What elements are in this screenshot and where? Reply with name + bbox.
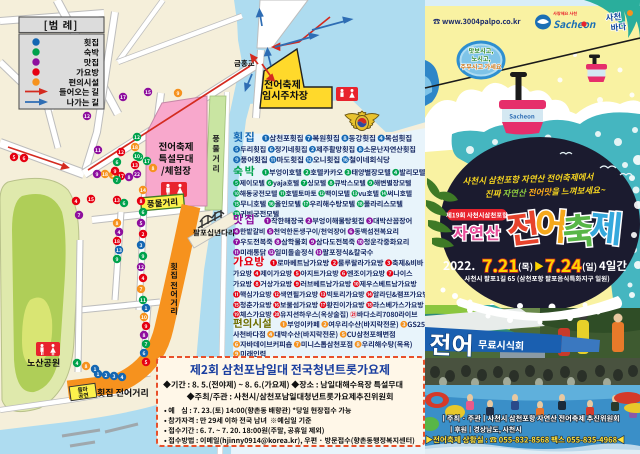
svg-text:사천바다점 ❹대박수산(바지락전문) ❺CU삼천포해변점: 사천바다점 ❹대박수산(바지락전문) ❺CU삼천포해변점	[233, 330, 396, 340]
svg-text:13: 13	[132, 162, 138, 169]
svg-text:가요방 ❹제이가요방 ❺아지트가요방 ❻엔조이가요방 ❼나이: 가요방 ❹제이가요방 ❺아지트가요방 ❻엔조이가요방 ❼나이스	[233, 269, 413, 279]
svg-text:18: 18	[132, 144, 138, 151]
svg-text:❺두리횟집 ❻정기네횟집 ❷제주활망횟집 ❽소문난자연산횟집: ❺두리횟집 ❻정기네횟집 ❷제주활망횟집 ❽소문난자연산횟집	[233, 145, 416, 155]
svg-text:• 접수기간 : 6. 7. ~ 7. 20. 18:00원: • 접수기간 : 6. 7. ~ 7. 20. 18:00원(주말, 공휴일 제…	[164, 426, 325, 436]
svg-text:나가는 길: 나가는 길	[67, 97, 99, 109]
svg-text:15: 15	[145, 89, 151, 96]
svg-text:9: 9	[116, 256, 119, 263]
svg-text:6: 6	[142, 209, 145, 216]
svg-text:무료시식회: 무료시식회	[478, 336, 524, 353]
svg-text:6: 6	[23, 155, 26, 162]
svg-text:가요방 ❽거상가요방 ❾러브베트남가요방 ❿제우스베트남가요: 가요방 ❽거상가요방 ❾러브베트남가요방 ❿제우스베트남가요방	[233, 280, 417, 290]
svg-text:Sacheon: Sacheon	[509, 112, 535, 121]
svg-text:18: 18	[102, 171, 108, 178]
svg-text:제: 제	[587, 198, 625, 253]
svg-text:13: 13	[114, 197, 120, 204]
svg-text:⓫핵심가요방 ⓬색연필가요방 ⓭빅토리가요방 ⓮알라딘&램프: ⓫핵심가요방 ⓬색연필가요방 ⓭빅토리가요방 ⓮알라딘&램프가요방	[233, 290, 429, 300]
svg-text:12: 12	[134, 134, 140, 141]
svg-text:2: 2	[142, 231, 145, 238]
svg-text:횟집 전어거리: 횟집 전어거리	[169, 262, 180, 315]
svg-text:❾풍어횟집 ⓫마도횟집 ⓬오니횟집 ⓰철이네회식당: ❾풍어횟집 ⓫마도횟집 ⓬오니횟집 ⓰철이네회식당	[233, 155, 390, 166]
svg-text:1: 1	[145, 305, 148, 312]
svg-text:전어: 전어	[429, 325, 474, 362]
svg-text:편의시설: 편의시설	[233, 316, 272, 331]
svg-text:6: 6	[123, 200, 126, 207]
svg-text:9: 9	[177, 90, 180, 97]
svg-text:17: 17	[144, 158, 150, 165]
svg-text:5: 5	[140, 220, 143, 227]
svg-text:7: 7	[140, 286, 143, 293]
svg-text:❻자바데이브커피숍 ❼미니스톱삼천포점 ❽우리해수탕(목욕): ❻자바데이브커피숍 ❼미니스톱삼천포점 ❽우리해수탕(목욕)	[233, 340, 413, 350]
svg-text:❹한밭갈비 ❺천억한돈생구이/천억장어 ❻동백섬전복요리: ❹한밭갈비 ❺천억한돈생구이/천억장어 ❻동백섬전복요리	[233, 227, 399, 237]
svg-text:5: 5	[145, 359, 148, 366]
svg-text:• 참가자격 : 만 29세 이하 전국 남녀 ※예심일: • 참가자격 : 만 29세 이하 전국 남녀 ※예심일 기준	[164, 416, 312, 426]
svg-text:바다: 바다	[610, 20, 627, 34]
svg-text:11: 11	[95, 147, 101, 154]
svg-text:9: 9	[145, 323, 148, 330]
svg-text:❶부엉이호텔 ❷호텔카카오 ❸태양별장모텔 ❹발리모텔: ❶부엉이호텔 ❷호텔카카오 ❸태양별장모텔 ❹발리모텔	[262, 168, 426, 178]
svg-text:7: 7	[145, 341, 148, 348]
svg-text:7: 7	[78, 212, 81, 219]
svg-text:8: 8	[116, 220, 119, 227]
svg-text:❶착한해장국 ❷부엉이해물탕횟집 ❸대박산꼼장어: ❶착한해장국 ❷부엉이해물탕횟집 ❸대박산꼼장어	[264, 217, 412, 227]
svg-text:❺제이모텔 ❻yaja호텔 ❼싱모텔 ❽큐박스모텔 ❾해변별: ❺제이모텔 ❻yaja호텔 ❼싱모텔 ❽큐박스모텔 ❾해변별장모텔	[233, 178, 411, 188]
svg-text:제2회 삼천포남일대 전국청년트롯가요제: 제2회 삼천포남일대 전국청년트롯가요제	[190, 361, 390, 378]
svg-text:(목): (목)	[518, 260, 533, 273]
svg-text:❼우도전복죽 ❽삼학물회 ❾삼다도전복죽 ❿청운각중화요리: ❼우도전복죽 ❽삼학물회 ❾삼다도전복죽 ❿청운각중화요리	[233, 238, 409, 248]
svg-text:8: 8	[128, 174, 131, 181]
svg-text:6: 6	[116, 159, 119, 166]
svg-text:▶: ▶	[534, 258, 544, 273]
svg-text:4: 4	[142, 275, 145, 282]
svg-text:8: 8	[143, 332, 146, 339]
svg-text:5: 5	[13, 154, 16, 161]
svg-text:12: 12	[118, 149, 124, 156]
svg-text:8: 8	[140, 198, 143, 205]
svg-text:⓯청춘가요방 ⓰보물섬가요방 ⓱황진이가요방 ⓲라스베가스가: ⓯청춘가요방 ⓰보물섬가요방 ⓱황진이가요방 ⓲라스베가스가요방	[233, 301, 424, 311]
svg-text:[범 례]: [범 례]	[44, 18, 79, 33]
svg-text:제19회 사천시삼천포항: 제19회 사천시삼천포항	[446, 211, 508, 220]
svg-text:• 예 심 : 7. 23.(토) 14:00(향촌동: • 예 심 : 7. 23.(토) 14:00(향촌동 배향관) *당일 현장접…	[164, 406, 352, 416]
svg-text:(일): (일)	[582, 260, 597, 273]
svg-text:가요방: 가요방	[233, 254, 265, 270]
svg-text:17: 17	[120, 94, 126, 101]
svg-text:ㅣ주최 · 주관ㅣ사천시 삼천포항 자연산 전어축제 추진위: ㅣ주최 · 주관ㅣ사천시 삼천포항 자연산 전어축제 추진위원회	[440, 414, 619, 424]
svg-text:맛집: 맛집	[233, 212, 256, 228]
svg-text:1: 1	[94, 366, 97, 373]
svg-text:주무시고 가세요: 주무시고 가세요	[460, 62, 502, 71]
svg-text:자연산: 자연산	[453, 220, 502, 244]
svg-text:☎ www.3004palpo.co.kr: ☎ www.3004palpo.co.kr	[433, 17, 521, 27]
svg-text:4: 4	[118, 229, 121, 236]
svg-text:9: 9	[96, 171, 99, 178]
svg-text:/체험장: /체험장	[161, 163, 191, 177]
svg-text:ㅣ후원ㅣ경상남도, 사천시: ㅣ후원ㅣ경상남도, 사천시	[448, 424, 522, 434]
svg-text:❶로마베트남가요방 ❷룰루랄라가요방 ❸축제&비바: ❶로마베트남가요방 ❷룰루랄라가요방 ❸축제&비바	[270, 259, 424, 269]
svg-text:노산공원: 노산공원	[27, 356, 60, 369]
svg-text:14: 14	[140, 187, 146, 194]
svg-text:7: 7	[116, 177, 119, 184]
svg-text:15: 15	[88, 196, 94, 203]
svg-text:9: 9	[114, 168, 117, 175]
svg-text:8: 8	[152, 165, 155, 172]
svg-text:◆주최/주관 : 사천시/삼천포남일대청년트롯가요제추진위원: ◆주최/주관 : 사천시/삼천포남일대청년트롯가요제추진위원회	[187, 392, 394, 403]
svg-text:◆기간 : 8. 5.(전야제) ~ 8. 6.(가요제): ◆기간 : 8. 5.(전야제) ~ 8. 6.(가요제) ◆장소 : 남일대해…	[163, 380, 403, 391]
svg-text:10: 10	[134, 153, 140, 160]
svg-text:❶삼천포횟집 ❼복원횟집 ❽동강횟집 ❹목섬횟집: ❶삼천포횟집 ❼복원횟집 ❽동강횟집 ❹목섬횟집	[262, 133, 412, 144]
svg-text:13: 13	[116, 247, 122, 254]
svg-text:횟집: 횟집	[233, 129, 256, 145]
svg-text:횟집 전어거리: 횟집 전어거리	[97, 386, 149, 399]
svg-text:⓯무니호텔 ⓰올인모텔 ⓱우리해수탕모텔 ⓲폴라리스모텔: ⓯무니호텔 ⓰올인모텔 ⓱우리해수탕모텔 ⓲폴라리스모텔	[233, 200, 403, 210]
svg-text:4: 4	[75, 198, 78, 205]
svg-text:22: 22	[134, 171, 140, 178]
svg-text:❿해동궁전모텔 ⓫호텔토마토 ⓬백이모텔 ⓭vu호텔 ⓮써니: ❿해동궁전모텔 ⓫호텔토마토 ⓬백이모텔 ⓭vu호텔 ⓮써니호텔	[233, 188, 412, 198]
svg-text:임시주차장: 임시주차장	[262, 87, 308, 102]
svg-text:11: 11	[140, 297, 146, 304]
svg-text:18: 18	[114, 238, 120, 245]
svg-text:12: 12	[84, 113, 90, 120]
svg-text:3: 3	[113, 373, 116, 380]
svg-text:12: 12	[138, 264, 144, 271]
svg-text:3: 3	[140, 242, 143, 249]
svg-text:4일간: 4일간	[599, 258, 627, 274]
svg-text:4: 4	[121, 374, 124, 381]
svg-text:팔포십년다리: 팔포십년다리	[193, 228, 235, 239]
svg-text:6: 6	[143, 350, 146, 357]
svg-text:4: 4	[76, 360, 79, 367]
svg-text:❶부엉이카페 ❷여우리수산(바지락전문) ❸GS25: ❶부엉이카페 ❷여우리수산(바지락전문) ❸GS25	[280, 320, 425, 330]
svg-text:• 접수방법 : 이메일(hjinny0914@korea.: • 접수방법 : 이메일(hjinny0914@korea.kr), 우편 · …	[164, 436, 415, 446]
svg-text:공연: 공연	[78, 391, 89, 400]
svg-text:Sacheon: Sacheon	[553, 16, 596, 31]
svg-text:2022.: 2022.	[443, 257, 475, 274]
svg-text:풍물거리: 풍물거리	[211, 134, 222, 174]
svg-text:2: 2	[105, 372, 108, 379]
svg-text:사천시 팔포1길 65 (삼천포항 팔포음식특화지구 일원): 사천시 팔포1길 65 (삼천포항 팔포음식특화지구 일원)	[464, 273, 609, 283]
svg-text:▶전어축제 상황실 : ☎ 055-832-8568 팩스: ▶전어축제 상황실 : ☎ 055-832-8568 팩스 055-835-49…	[425, 435, 624, 446]
svg-text:9: 9	[142, 253, 145, 260]
svg-text:10: 10	[141, 314, 147, 321]
svg-text:8: 8	[85, 363, 88, 370]
